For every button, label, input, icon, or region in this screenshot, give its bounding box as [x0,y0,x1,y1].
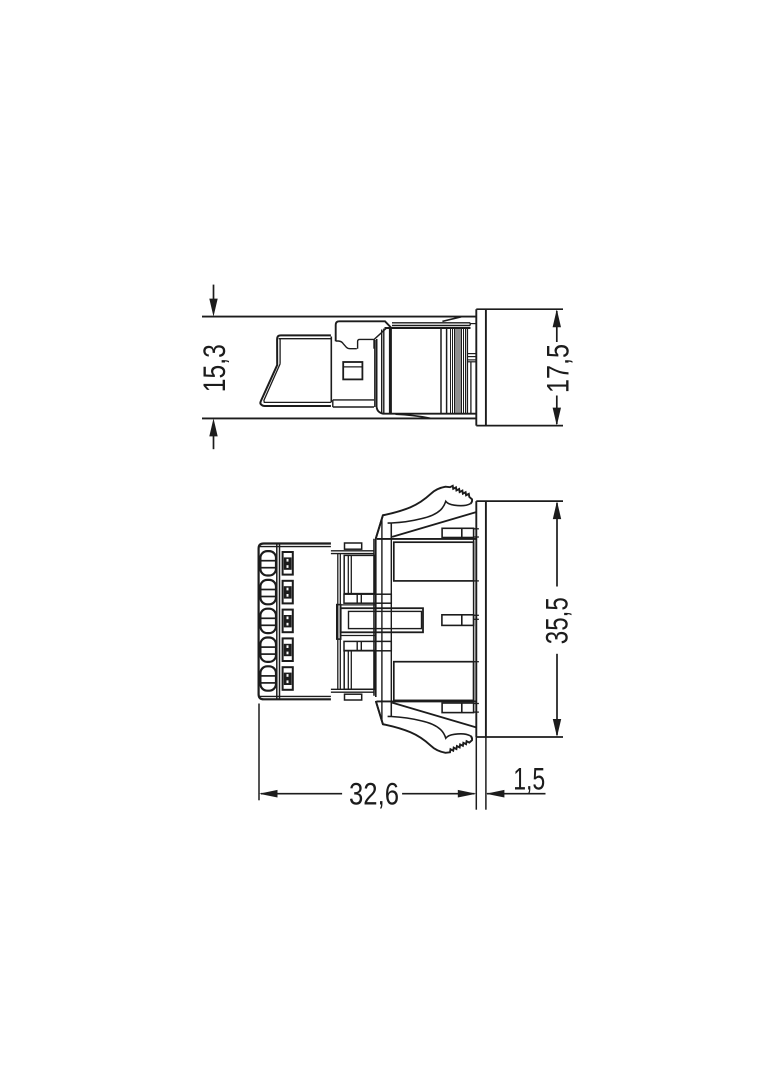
svg-text:32,6: 32,6 [349,775,399,811]
svg-text:15,3: 15,3 [196,344,232,392]
svg-text:17,5: 17,5 [539,344,575,393]
svg-text:35,5: 35,5 [538,597,574,644]
svg-text:1,5: 1,5 [513,761,545,797]
